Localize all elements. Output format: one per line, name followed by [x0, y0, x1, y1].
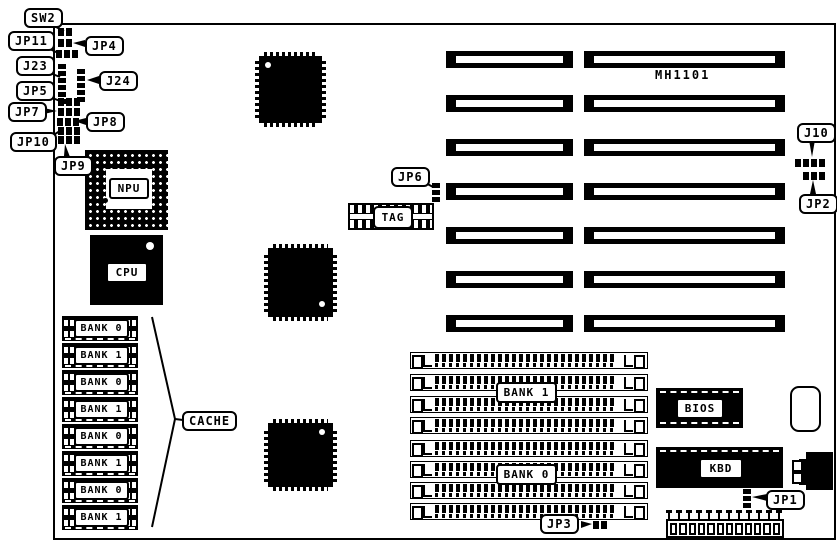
cache-chip: BANK 0 — [62, 478, 138, 503]
isa-slot — [584, 271, 785, 288]
npu-label: NPU — [109, 178, 149, 199]
simm-bank1-label: BANK 1 — [496, 382, 557, 403]
callout-cache: CACHE — [182, 411, 237, 431]
jp8-jumper — [57, 118, 79, 126]
cache-chip: BANK 1 — [62, 451, 138, 476]
callout-jp5: JP5 — [16, 81, 55, 101]
jp4-jumper — [58, 39, 72, 47]
cache-chip-label: BANK 0 — [74, 373, 129, 392]
cache-chip-label: BANK 1 — [74, 454, 129, 473]
motherboard-diagram: SW2 JP11 JP4 J23 J24 JP5 JP7 JP8 JP10 JP… — [0, 0, 837, 546]
jp1-jumper — [743, 489, 751, 508]
callout-jp1: JP1 — [766, 490, 805, 510]
jp7-jumper — [58, 108, 80, 116]
isa-slot — [584, 139, 785, 156]
power-connector-body — [666, 519, 784, 538]
cache-chip-label: BANK 1 — [74, 508, 129, 527]
cpu-label: CPU — [106, 262, 148, 283]
callout-jp4: JP4 — [85, 36, 124, 56]
isa-slot — [584, 51, 785, 68]
isa-slot — [446, 95, 573, 112]
simm-socket — [410, 440, 648, 457]
jp5-jumper — [58, 98, 80, 106]
callout-j23: J23 — [16, 56, 55, 76]
jp10-jumper — [58, 127, 80, 135]
keyboard-connector-pad — [792, 472, 803, 484]
isa-slot — [446, 139, 573, 156]
keyboard-connector — [806, 452, 833, 490]
cache-chip-label: BANK 1 — [74, 346, 129, 365]
simm-bank0-label: BANK 0 — [496, 464, 557, 485]
tag-label: TAG — [373, 206, 413, 229]
callout-j24: J24 — [99, 71, 138, 91]
simm-socket — [410, 352, 648, 369]
isa-slot — [584, 183, 785, 200]
isa-slot — [446, 271, 573, 288]
simm-socket — [410, 417, 648, 434]
simm-socket — [410, 503, 648, 520]
jp3-jumper — [593, 521, 607, 529]
isa-slot — [446, 227, 573, 244]
cpu-pin1-dot — [146, 242, 154, 250]
callout-j10: J10 — [797, 123, 836, 143]
keyboard-connector-pad — [792, 460, 803, 472]
cpu-chip: CPU — [90, 235, 163, 305]
callout-jp8: JP8 — [86, 112, 125, 132]
callout-jp10: JP10 — [10, 132, 57, 152]
callout-sw2: SW2 — [24, 8, 63, 28]
cache-chip-label: BANK 0 — [74, 427, 129, 446]
j10-jumper — [795, 159, 825, 167]
qfp3-pin1-dot — [319, 429, 325, 435]
isa-slot — [584, 315, 785, 332]
power-connector — [666, 510, 784, 538]
sw2-switch — [58, 28, 72, 36]
qfp-chip-1 — [259, 56, 322, 123]
cache-chip: BANK 1 — [62, 397, 138, 422]
callout-jp7: JP7 — [8, 102, 47, 122]
isa-slot — [446, 183, 573, 200]
bios-chip: BIOS — [656, 388, 743, 428]
kbd-label: KBD — [699, 458, 743, 479]
bios-label: BIOS — [676, 398, 724, 419]
battery-outline — [790, 386, 821, 432]
qfp1-pin1-dot — [265, 62, 271, 68]
cache-chip-label: BANK 1 — [74, 400, 129, 419]
jp6-jumper — [432, 183, 440, 202]
board-model-text: MH1101 — [655, 68, 710, 82]
kbd-chip: KBD — [656, 447, 783, 488]
cache-chip: BANK 0 — [62, 316, 138, 341]
callout-jp9: JP9 — [54, 156, 93, 176]
npu-socket: NPU — [85, 150, 168, 230]
jp2-jumper — [803, 172, 825, 180]
callout-jp6: JP6 — [391, 167, 430, 187]
jp11-jumper — [56, 50, 78, 58]
cache-chip: BANK 0 — [62, 424, 138, 449]
qfp-chip-2 — [268, 248, 333, 317]
callout-jp2: JP2 — [799, 194, 837, 214]
npu-pin1-dot — [103, 198, 108, 203]
jp9-jumper — [58, 136, 80, 144]
cache-chip-label: BANK 0 — [74, 319, 129, 338]
callout-jp3: JP3 — [540, 514, 579, 534]
tag-socket: TAG — [348, 203, 434, 230]
cache-chip: BANK 1 — [62, 505, 138, 530]
qfp-chip-3 — [268, 423, 333, 487]
callout-jp11: JP11 — [8, 31, 55, 51]
power-connector-pins — [666, 510, 784, 519]
isa-slot — [446, 51, 573, 68]
cache-chip: BANK 0 — [62, 370, 138, 395]
cache-chip: BANK 1 — [62, 343, 138, 368]
isa-slot — [584, 95, 785, 112]
isa-slot — [584, 227, 785, 244]
cache-chip-label: BANK 0 — [74, 481, 129, 500]
qfp2-pin1-dot — [319, 301, 325, 307]
isa-slot — [446, 315, 573, 332]
